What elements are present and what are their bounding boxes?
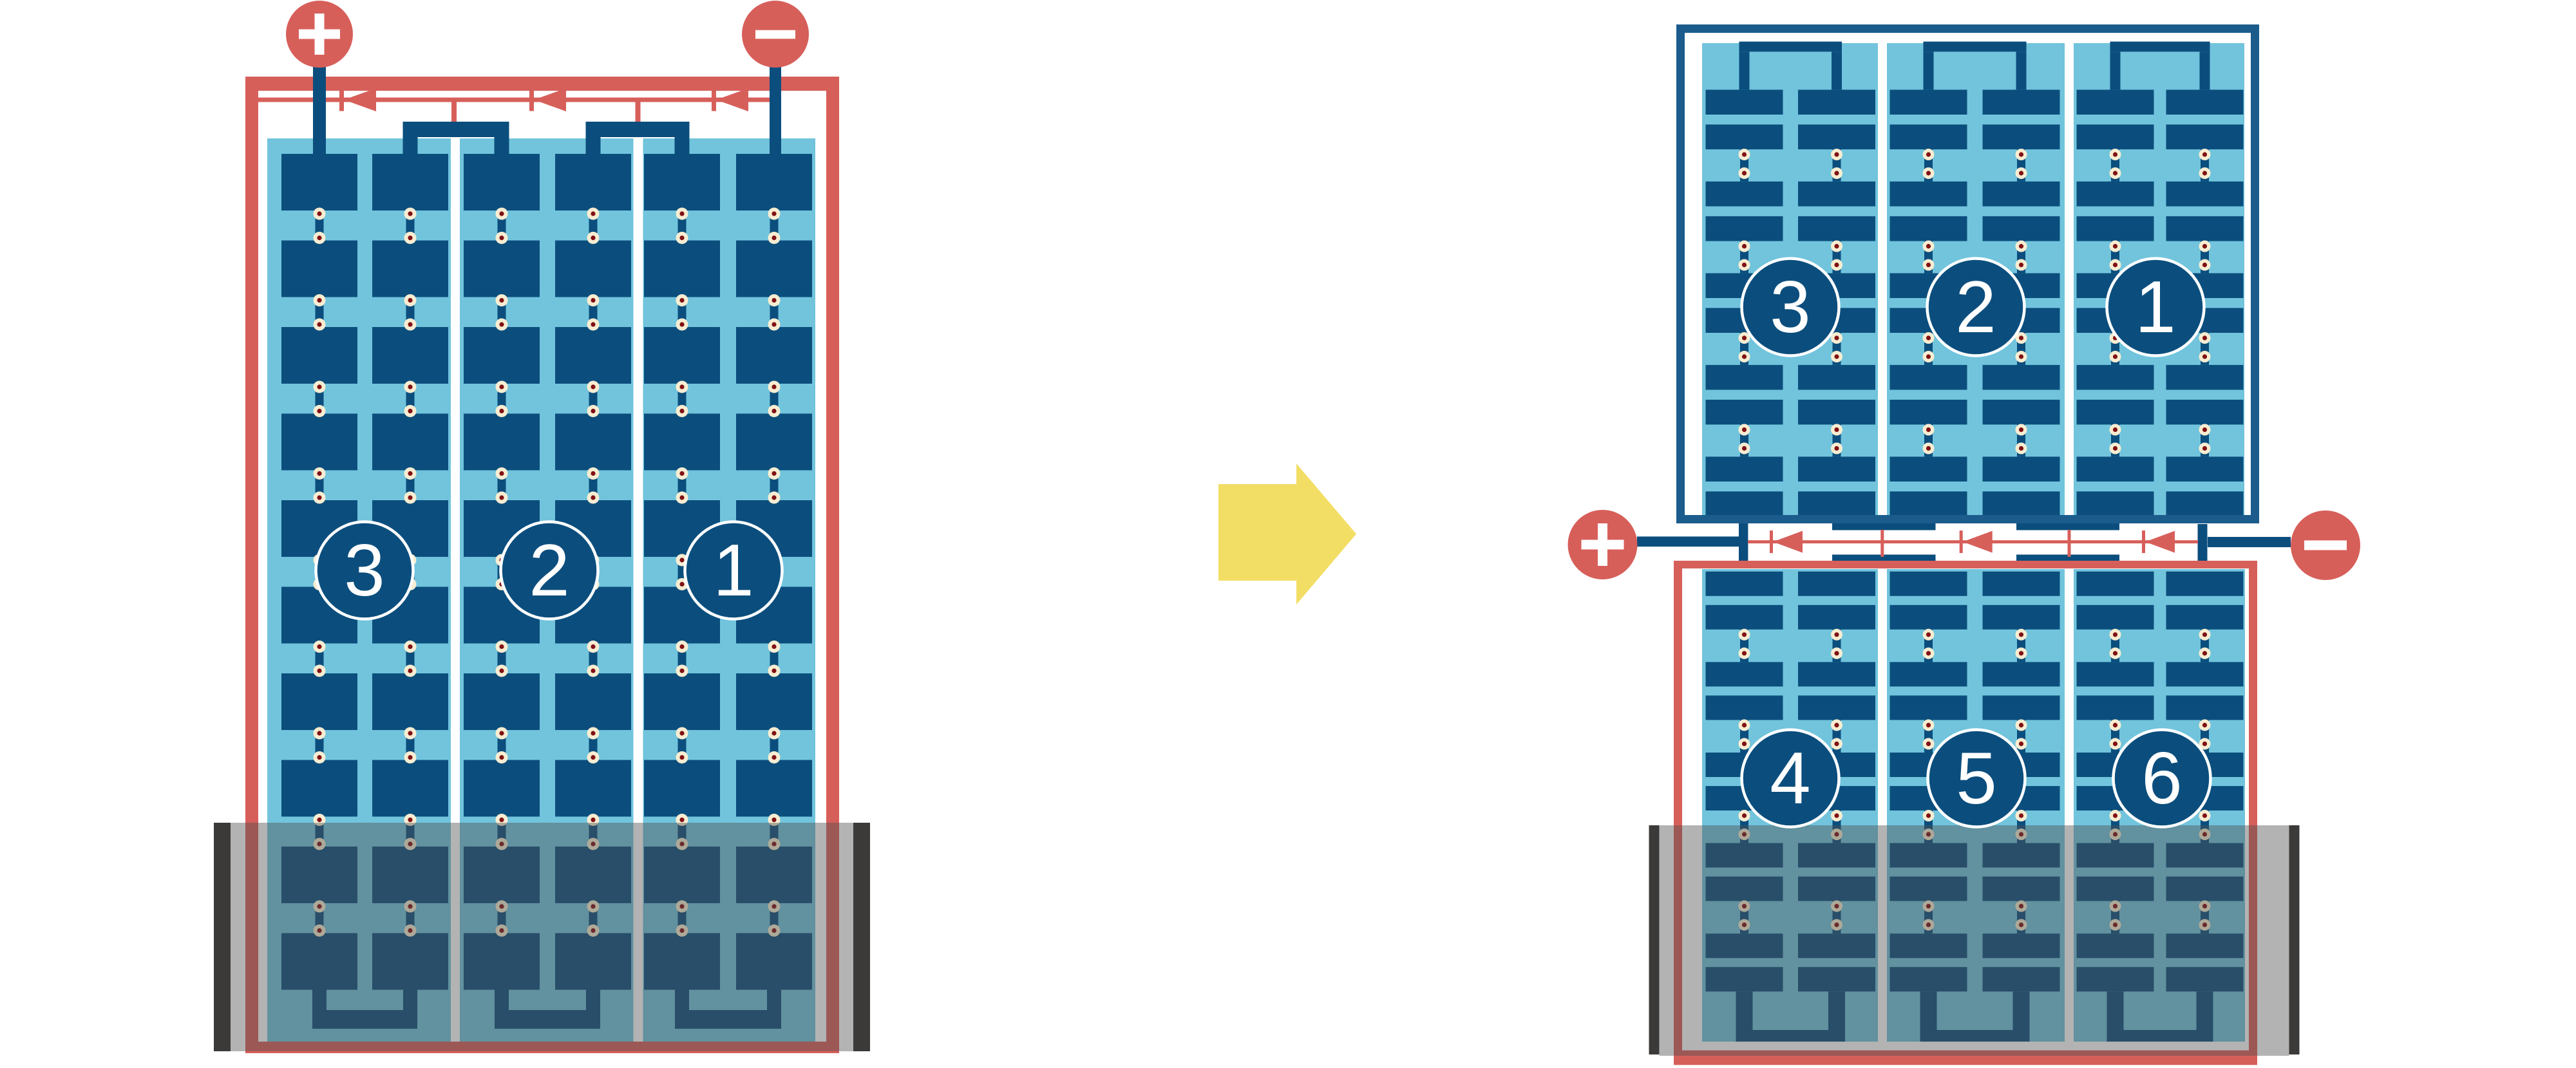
svg-text:2: 2	[529, 530, 569, 612]
svg-text:1: 1	[2135, 267, 2175, 348]
svg-text:6: 6	[2141, 738, 2182, 820]
svg-text:4: 4	[1770, 738, 1810, 820]
svg-text:1: 1	[713, 530, 753, 612]
svg-text:3: 3	[344, 530, 384, 612]
svg-text:5: 5	[1956, 738, 1996, 820]
svg-text:2: 2	[1955, 267, 1996, 348]
svg-text:3: 3	[1770, 267, 1810, 348]
